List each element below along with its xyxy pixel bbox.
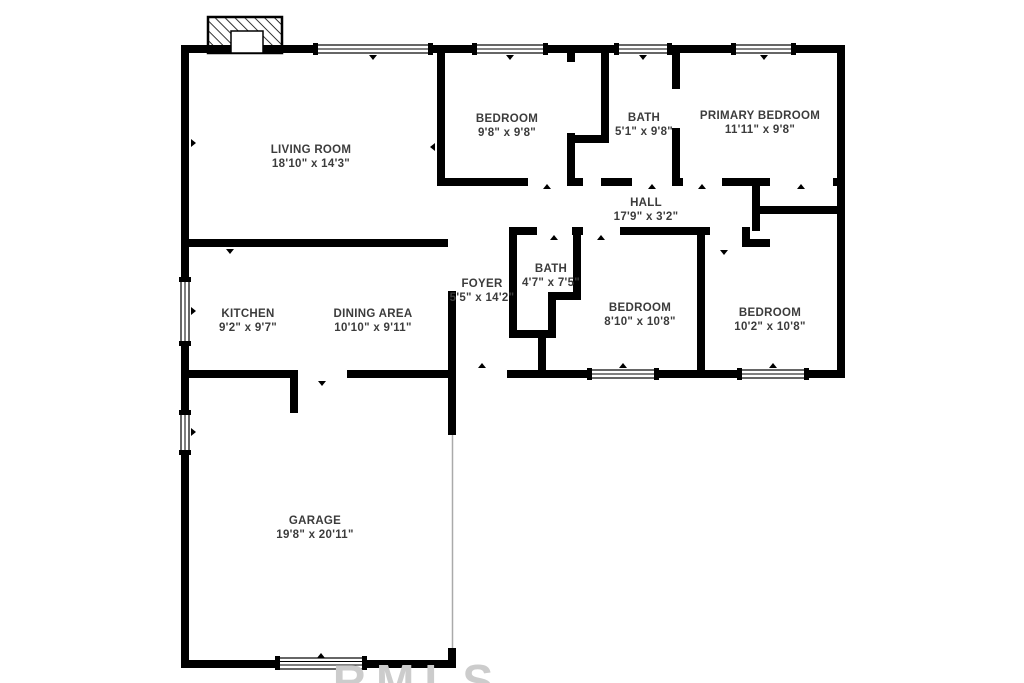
room-dims: 10'10" x 9'11" (334, 322, 412, 334)
room-label-bath-2: BATH 4'7" x 7'5" (522, 263, 580, 289)
room-name: PRIMARY BEDROOM (700, 110, 820, 122)
room-name: KITCHEN (221, 308, 274, 320)
window-symbol-bedroom3 (737, 368, 809, 380)
window-symbol-kitchen (179, 277, 191, 346)
window-symbol-bath1 (614, 43, 672, 55)
room-dims: 8'10" x 10'8" (604, 316, 675, 328)
room-label-foyer: FOYER 5'5" x 14'2" (450, 278, 515, 304)
room-label-bedroom-1: BEDROOM 9'8" x 9'8" (476, 113, 538, 139)
window-symbol-primary (731, 43, 796, 55)
room-dims: 11'11" x 9'8" (725, 124, 795, 136)
room-dims: 17'9" x 3'2" (614, 211, 679, 223)
room-name: LIVING ROOM (271, 144, 352, 156)
room-label-garage: GARAGE 19'8" x 20'11" (276, 515, 354, 541)
room-dims: 10'2" x 10'8" (734, 321, 805, 333)
window-symbols (179, 43, 809, 455)
room-name: DINING AREA (334, 308, 413, 320)
room-label-living-room: LIVING ROOM 18'10" x 14'3" (271, 144, 352, 170)
room-dims: 19'8" x 20'11" (276, 529, 354, 541)
room-label-hall: HALL 17'9" x 3'2" (614, 197, 679, 223)
room-dims: 5'1" x 9'8" (615, 126, 673, 138)
room-label-dining-area: DINING AREA 10'10" x 9'11" (334, 308, 413, 334)
room-dims: 9'8" x 9'8" (478, 127, 536, 139)
room-name: GARAGE (289, 515, 341, 527)
room-name: HALL (630, 197, 662, 209)
room-label-primary-bedroom: PRIMARY BEDROOM 11'11" x 9'8" (700, 110, 820, 136)
window-symbol-bedroom2 (587, 368, 659, 380)
room-label-bath-1: BATH 5'1" x 9'8" (615, 112, 673, 138)
room-name: BEDROOM (609, 302, 671, 314)
room-label-kitchen: KITCHEN 9'2" x 9'7" (219, 308, 277, 334)
room-dims: 5'5" x 14'2" (450, 292, 515, 304)
window-symbol-living (313, 43, 433, 55)
room-dims: 4'7" x 7'5" (522, 277, 580, 289)
fireplace-icon (208, 17, 282, 53)
room-labels: LIVING ROOM 18'10" x 14'3" BEDROOM 9'8" … (219, 110, 820, 541)
room-label-bedroom-3: BEDROOM 10'2" x 10'8" (734, 307, 805, 333)
room-name: BATH (535, 263, 567, 275)
window-symbol-garage (179, 410, 191, 455)
room-name: BATH (628, 112, 660, 124)
window-symbol-bedroom1 (472, 43, 548, 55)
room-name: BEDROOM (739, 307, 801, 319)
room-name: BEDROOM (476, 113, 538, 125)
room-label-bedroom-2: BEDROOM 8'10" x 10'8" (604, 302, 675, 328)
room-dims: 9'2" x 9'7" (219, 322, 277, 334)
watermark-text: RMLS (333, 655, 503, 683)
room-name: FOYER (461, 278, 503, 290)
room-dims: 18'10" x 14'3" (272, 158, 350, 170)
floor-plan: LIVING ROOM 18'10" x 14'3" BEDROOM 9'8" … (0, 0, 1024, 683)
